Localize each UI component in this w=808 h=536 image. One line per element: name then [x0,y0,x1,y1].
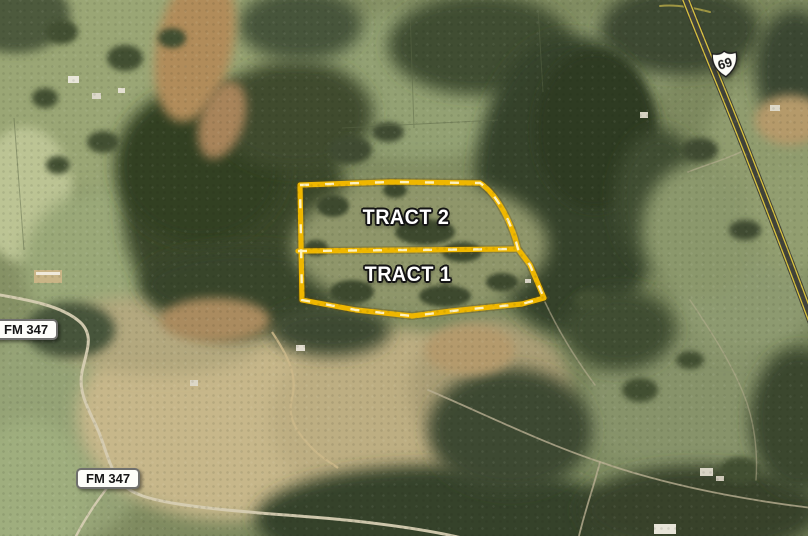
road-badge-fm347-west: FM 347 [0,319,58,340]
tract-1-label: TRACT 1 [352,263,465,287]
aerial-map: TRACT 2 TRACT 1 FM 347 FM 347 69 [0,0,808,536]
us-69-shield: 69 [710,48,740,80]
tract-2-label: TRACT 2 [350,206,463,230]
road-badge-fm347-south: FM 347 [76,468,140,489]
